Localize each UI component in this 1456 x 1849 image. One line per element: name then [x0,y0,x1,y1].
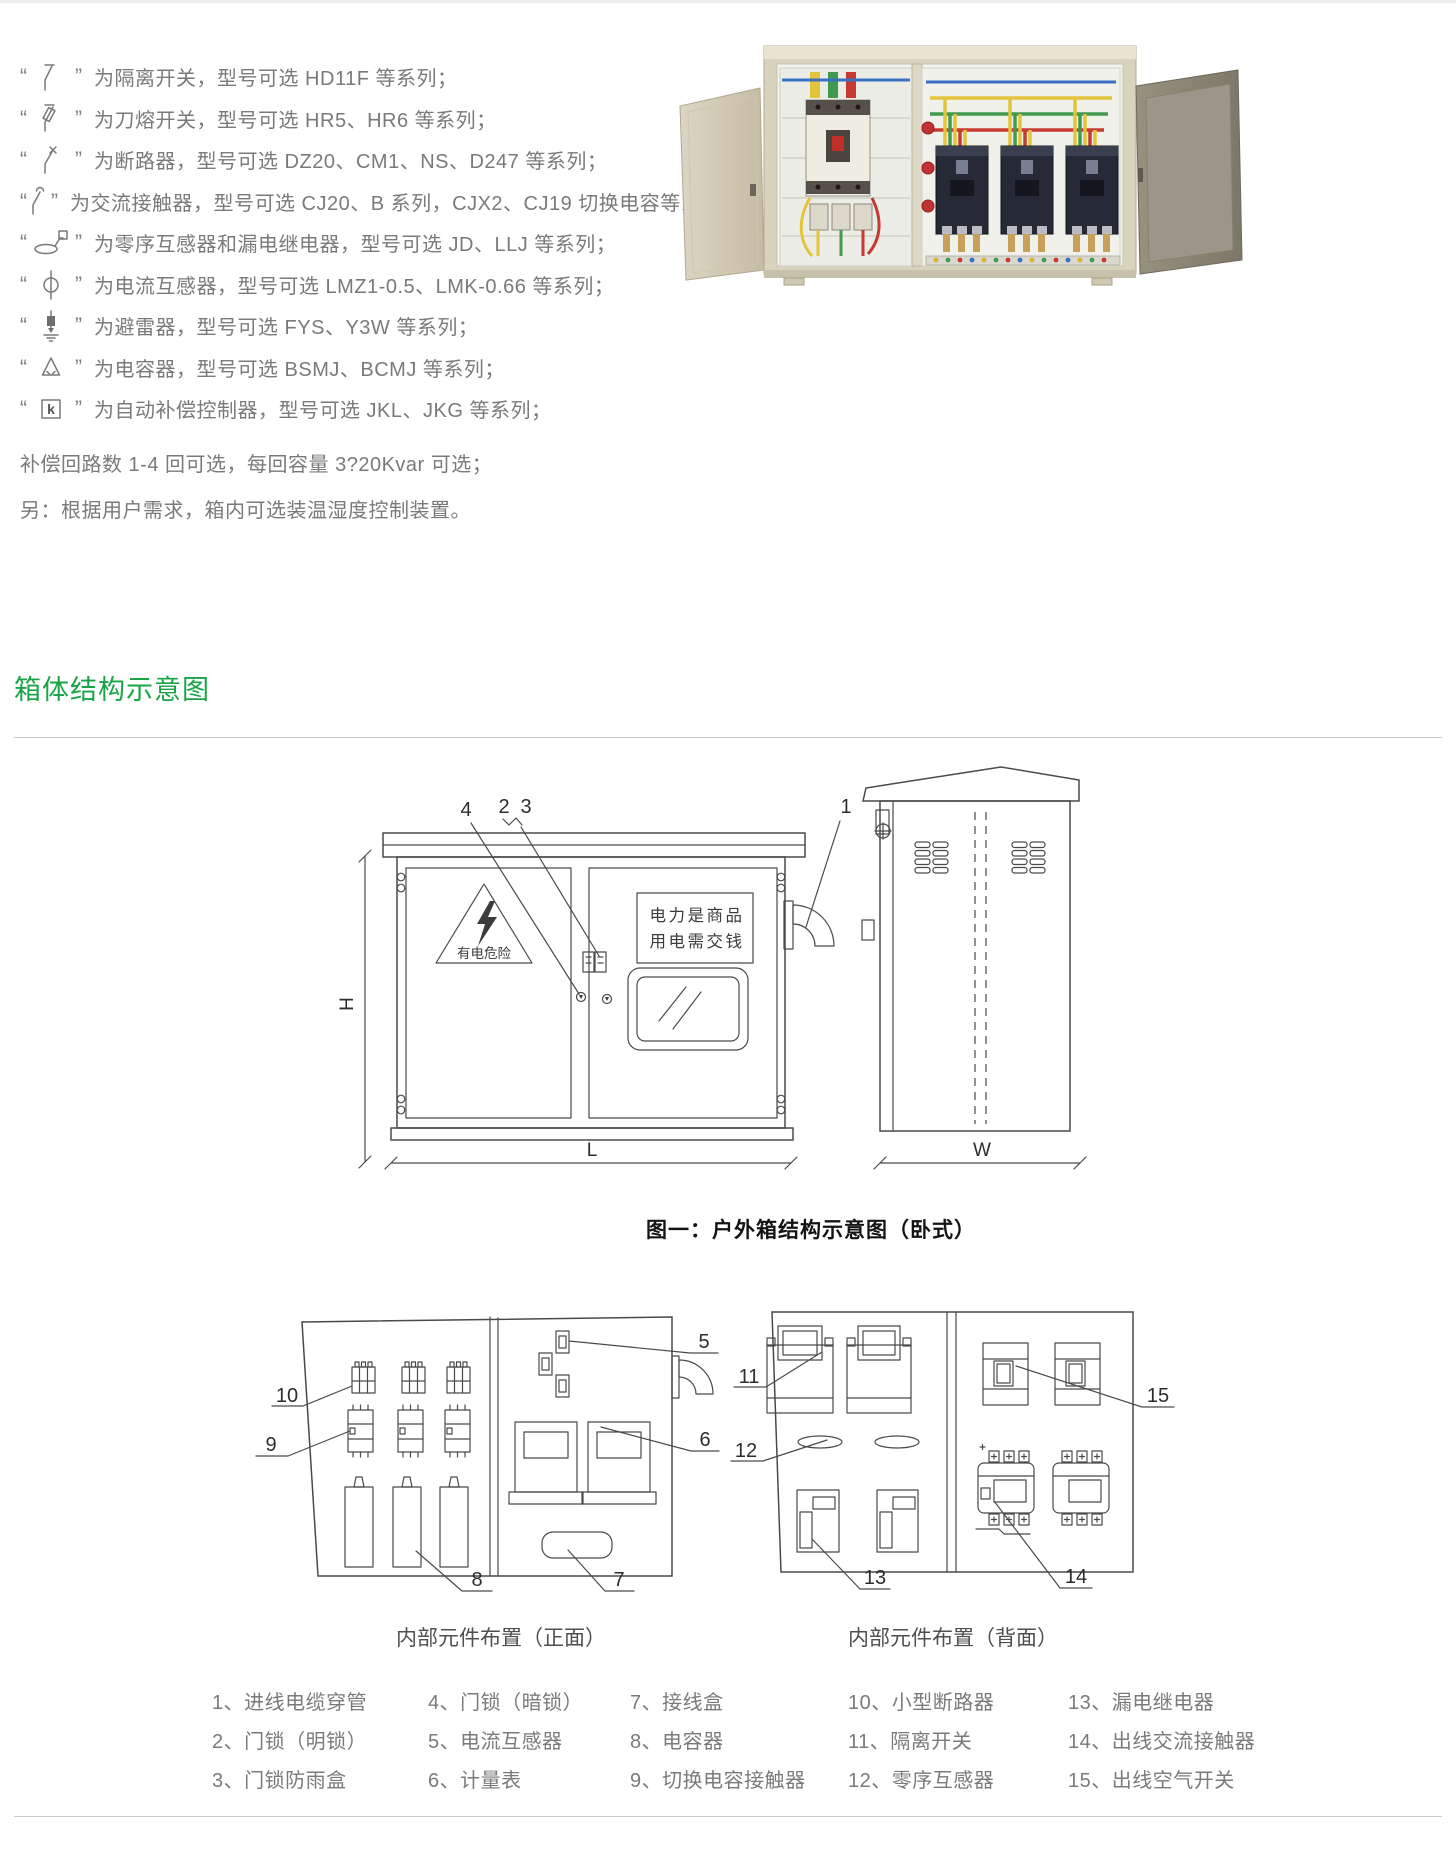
figure1-side-view: W [862,767,1086,1169]
parts-legend: 1、进线电缆穿管 2、门锁（明锁） 3、门锁防雨盒 4、门锁（暗锁） 5、电流互… [212,1686,1268,1803]
symbol-row-ct: “ ” 为电流互感器，型号可选 LMZ1-0.5、LMK-0.66 等系列； [20,264,680,306]
callout-14: 14 [1065,1566,1087,1588]
photo-right-bay [922,68,1120,266]
callout-11: 11 [739,1366,760,1388]
legend-item-6: 6、计量表 [428,1764,630,1803]
isolator-switches [767,1326,911,1413]
figure1-drawing: 4 2 3 1 有电危险 电力是商品 [290,760,1110,1180]
louvers [915,842,1045,873]
symbol-row-capacitor: “ ” 为电容器，型号可选 BSMJ、BCMJ 等系列； [20,347,680,389]
figure2-front-caption: 内部元件布置（正面） [396,1622,606,1652]
callout-6: 6 [699,1429,710,1451]
photo-left-door [680,88,764,280]
legend-item-7: 7、接线盒 [630,1686,848,1725]
note-optional-device: 另：根据用户需求，箱内可选装温湿度控制装置。 [20,488,680,534]
callout-3: 3 [520,796,531,818]
close-quote: ” [75,232,82,253]
callout-9: 9 [265,1434,276,1456]
callout-13: 13 [864,1567,886,1589]
capacitors [345,1477,468,1567]
close-quote: ” [75,66,82,87]
figure1-caption: 图一：户外箱结构示意图（卧式） [646,1214,1006,1244]
symbol-description: 为自动补偿控制器，型号可选 JKL、JKG 等系列； [94,394,551,423]
legend-item-12: 12、零序互感器 [848,1764,1068,1803]
close-quote: ” [75,274,82,295]
photo-right-door [1136,70,1242,274]
section-divider [14,737,1442,738]
zero-seq-ct [875,1436,919,1448]
legend-item-11: 11、隔离开关 [848,1725,1068,1764]
surge-arrester-icon [27,309,75,343]
figure2-front-layout: 10 9 8 7 5 6 [256,1317,719,1591]
callout-15: 15 [1147,1385,1169,1407]
outgoing-contactors [976,1445,1109,1535]
figure2-back-caption: 内部元件布置（背面） [848,1622,1058,1652]
legend-item-3: 3、门锁防雨盒 [212,1764,428,1803]
symbol-row-isolator: “ ” 为隔离开关，型号可选 HD11F 等系列； [20,56,680,98]
open-quote: “ [20,149,27,170]
cabinet-photo [660,28,1245,286]
callout-4: 4 [460,799,471,821]
figure2-back-layout: 11 12 13 14 15 [731,1312,1174,1589]
capacitor-contactors [348,1405,470,1457]
symbol-description: 为零序互感器和漏电继电器，型号可选 JD、LLJ 等系列； [94,228,616,257]
sign-line1: 电力是商品 [650,906,745,925]
open-quote: “ [20,232,27,253]
capacitor-icon [27,351,75,383]
callout-8: 8 [471,1569,482,1591]
symbol-description: 为电容器，型号可选 BSMJ、BCMJ 等系列； [94,353,505,382]
controller-symbol-letter: k [47,401,55,417]
callout-7: 7 [613,1569,624,1591]
callout-1: 1 [840,796,851,818]
figure2-drawing: 10 9 8 7 5 6 [230,1290,1180,1620]
catalog-page: “ ” 为隔离开关，型号可选 HD11F 等系列； “ ” 为刀熔开关，型号可选… [0,0,1456,1849]
figure1-callouts: 4 2 3 1 [460,796,851,994]
callout-2: 2 [498,796,509,818]
zero-sequence-ct-icon [27,227,75,259]
photo-center-divider [912,64,922,266]
symbol-row-breaker: “ ” 为断路器，型号可选 DZ20、CM1、NS、D247 等系列； [20,139,680,181]
dim-label-W: W [973,1140,991,1161]
open-quote: “ [20,66,27,87]
page-top-divider [0,0,1456,3]
legend-item-9: 9、切换电容接触器 [630,1764,848,1803]
open-quote: “ [20,108,27,129]
note-compensation-loops: 补偿回路数 1-4 回可选，每回容量 3?20Kvar 可选； [20,442,680,488]
symbol-row-controller: “ k ” 为自动补偿控制器，型号可选 JKL、JKG 等系列； [20,388,680,430]
auto-compensation-controller-icon: k [27,393,75,425]
callout-12: 12 [735,1440,757,1462]
current-transformers [539,1331,569,1397]
legend-item-15: 15、出线空气开关 [1068,1764,1268,1803]
legend-item-13: 13、漏电继电器 [1068,1686,1268,1725]
legend-item-8: 8、电容器 [630,1725,848,1764]
close-quote: ” [75,398,82,419]
symbol-description: 为电流互感器，型号可选 LMZ1-0.5、LMK-0.66 等系列； [94,270,614,299]
symbol-description: 为避雷器，型号可选 FYS、Y3W 等系列； [94,311,478,340]
meters [509,1422,656,1504]
symbol-row-knife-fuse: “ ” 为刀熔开关，型号可选 HR5、HR6 等系列； [20,98,680,140]
symbol-legend-notes: 补偿回路数 1-4 回可选，每回容量 3?20Kvar 可选； 另：根据用户需求… [20,442,680,534]
sign-line2: 用电需交钱 [650,932,745,951]
photo-left-bay [780,68,912,266]
knife-fuse-switch-icon [27,102,75,134]
symbol-description: 为刀熔开关，型号可选 HR5、HR6 等系列； [94,104,497,133]
close-quote: ” [75,108,82,129]
dim-label-H: H [337,997,358,1011]
legend-item-5: 5、电流互感器 [428,1725,630,1764]
open-quote: “ [20,315,27,336]
page-bottom-divider [14,1816,1442,1817]
figure1-front-view: 有电危险 电力是商品 用电需交钱 H L [337,833,834,1169]
symbol-description: 为交流接触器，型号可选 CJ20、B 系列，CJX2、CJ19 切换电容等系列； [70,187,742,216]
isolator-switch-icon [27,61,75,93]
callout-5: 5 [698,1331,709,1353]
symbol-description: 为断路器，型号可选 DZ20、CM1、NS、D247 等系列； [94,145,607,174]
section-title: 箱体结构示意图 [14,668,210,707]
open-quote: “ [20,191,27,212]
legend-item-1: 1、进线电缆穿管 [212,1686,428,1725]
close-quote: ” [75,357,82,378]
open-quote: “ [20,398,27,419]
junction-box [542,1532,612,1558]
symbol-row-contactor: “ ” 为交流接触器，型号可选 CJ20、B 系列，CJX2、CJ19 切换电容… [20,181,680,223]
symbol-row-arrester: “ ” 为避雷器，型号可选 FYS、Y3W 等系列； [20,305,680,347]
mini-breakers [352,1362,470,1393]
legend-item-2: 2、门锁（明锁） [212,1725,428,1764]
open-quote: “ [20,274,27,295]
ac-contactor-icon [27,185,51,217]
symbol-description: 为隔离开关，型号可选 HD11F 等系列； [94,62,457,91]
close-quote: ” [51,191,58,212]
close-quote: ” [75,315,82,336]
circuit-breaker-icon [27,144,75,176]
legend-item-4: 4、门锁（暗锁） [428,1686,630,1725]
open-quote: “ [20,357,27,378]
current-transformer-icon [27,268,75,300]
close-quote: ” [75,149,82,170]
warning-label: 有电危险 [457,946,511,961]
legend-item-10: 10、小型断路器 [848,1686,1068,1725]
legend-item-14: 14、出线交流接触器 [1068,1725,1268,1764]
symbol-legend: “ ” 为隔离开关，型号可选 HD11F 等系列； “ ” 为刀熔开关，型号可选… [20,56,680,534]
symbol-row-zero-seq-ct: “ ” 为零序互感器和漏电继电器，型号可选 JD、LLJ 等系列； [20,222,680,264]
callout-10: 10 [276,1385,298,1407]
dim-label-L: L [587,1140,598,1161]
